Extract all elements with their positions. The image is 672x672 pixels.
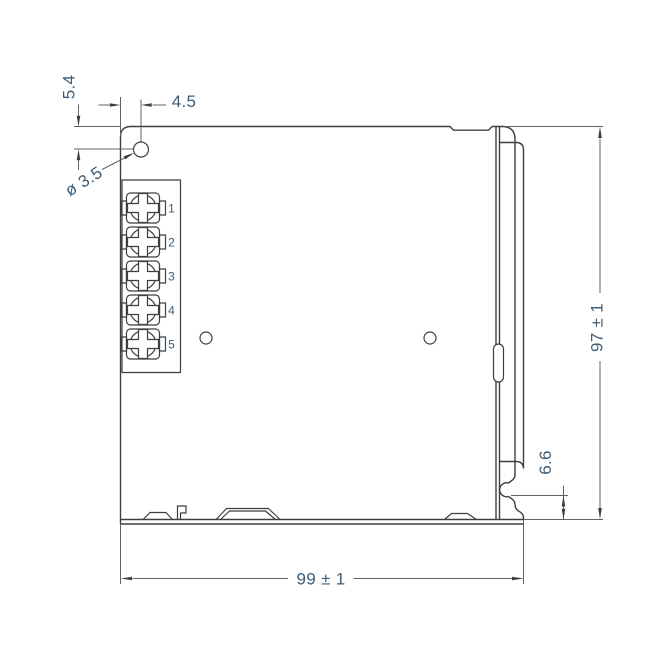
chassis-top-edge [121, 127, 505, 138]
dimension-6-6 [511, 486, 568, 520]
phillips-cross-icon [128, 228, 159, 257]
terminal-row-3: 3 [121, 261, 175, 291]
dim-arrows [110, 103, 152, 107]
terminal-number: 3 [168, 269, 175, 283]
terminal-tab-right [160, 337, 166, 351]
terminal-tab-right [160, 269, 166, 283]
bottom-tab-small-right [445, 514, 477, 520]
terminal-tab-right [160, 303, 166, 317]
terminal-row-5: 5 [121, 329, 175, 359]
dim-6-6-label: 6.6 [536, 450, 555, 475]
chassis-right-wall [496, 127, 500, 520]
dim-hole-diameter-label: ø 3.5 [62, 163, 106, 200]
dim-99-label: 99 ± 1 [297, 570, 346, 589]
terminal-number: 4 [168, 303, 175, 317]
phillips-cross-icon [128, 262, 159, 291]
terminal-number: 5 [168, 337, 175, 351]
terminal-block: 1 2 3 4 [121, 180, 181, 373]
dim-arrows [77, 116, 81, 160]
psu-mechanical-drawing: 1 2 3 4 [0, 0, 672, 672]
terminal-row-1: 1 [121, 193, 175, 223]
phillips-cross-icon [128, 194, 159, 223]
bottom-hook-tab [178, 506, 187, 520]
terminal-tab-right [160, 235, 166, 249]
bottom-tab-small-left [143, 513, 173, 520]
dim-5-4-label: 5.4 [60, 75, 79, 100]
drawing-canvas: 1 2 3 4 [0, 0, 672, 672]
dimension-4-5 [99, 97, 167, 142]
mounting-hole [134, 142, 149, 157]
bottom-right-notch [500, 475, 524, 521]
right-rail-inner-line [504, 127, 516, 475]
leader-arrow [124, 153, 135, 160]
leader-line [102, 158, 126, 170]
right-rail-outer-plate [500, 143, 524, 468]
phillips-cross-icon [128, 296, 159, 325]
chassis-hole-left [200, 332, 212, 344]
terminal-number: 1 [168, 201, 175, 215]
phillips-cross-icon [128, 330, 159, 359]
right-rail-slot-bottom [500, 462, 524, 469]
terminal-tab-right [160, 201, 166, 215]
chassis-hole-right [424, 332, 436, 344]
chassis-bottom-edge [121, 520, 524, 525]
terminal-number: 2 [168, 235, 175, 249]
dim-4-5-label: 4.5 [172, 92, 197, 111]
terminal-row-4: 4 [121, 295, 175, 325]
dimension-5-4 [74, 105, 134, 171]
side-vent-slot [494, 344, 504, 382]
bottom-tab-large [216, 509, 280, 520]
terminal-row-2: 2 [121, 227, 175, 257]
dimension-hole-diameter [102, 153, 134, 170]
dim-97-label: 97 ± 1 [588, 303, 607, 352]
